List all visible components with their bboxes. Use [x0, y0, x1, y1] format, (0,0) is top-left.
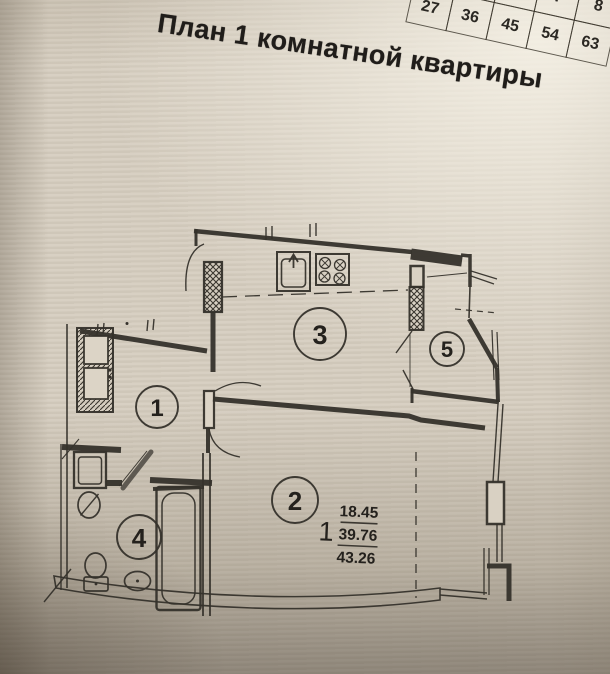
- wall-bottom-curved: [54, 576, 440, 609]
- living-area: 18.45: [339, 503, 379, 522]
- pier-balcony: [411, 266, 424, 287]
- pier-balcony-hatched: [410, 287, 424, 330]
- wardrobe-door-upper: [84, 336, 108, 364]
- room-number-1: 1: [150, 395, 163, 422]
- window-bottom: [440, 589, 487, 599]
- balcony-door-leaf2: [403, 370, 413, 389]
- kitchen-door-arc: [215, 382, 261, 391]
- floor-plan-drawing: 1 2 3 4 5 1 18.45 39.76 43.26: [0, 0, 610, 674]
- wall-balcony-right: [497, 368, 498, 402]
- wardrobe-handle: [108, 375, 111, 378]
- overall-area: 43.26: [336, 549, 376, 568]
- wall-corner-pier: [487, 566, 509, 601]
- bath-door-leaf: [123, 452, 151, 488]
- wardrobe-door-lower: [84, 368, 108, 399]
- room-number-2: 2: [288, 486, 302, 516]
- area-block: 1 18.45 39.76 43.26: [317, 502, 379, 568]
- kitchen-sink-icon: [277, 252, 310, 291]
- room-number-5: 5: [441, 337, 453, 362]
- wall-balcony-hook: [461, 254, 470, 287]
- wall-balcony-top: [411, 254, 462, 261]
- wall-balcony-bottom: [411, 391, 499, 402]
- fraction-bar: [341, 522, 378, 524]
- window-jamb: [484, 548, 489, 595]
- pier-entrance-hatched: [204, 262, 222, 312]
- balcony-glazing-top: [471, 271, 497, 284]
- wall-bath-living: [203, 453, 210, 616]
- wall-living-top: [213, 399, 485, 428]
- bath-door-line: [119, 451, 147, 486]
- pier-facade: [487, 482, 504, 524]
- washing-machine-icon: [74, 452, 106, 488]
- balcony-frame: [469, 287, 470, 318]
- window-right-upper: [493, 404, 503, 482]
- stove-icon: [316, 254, 349, 285]
- balcony-dashed: [455, 309, 498, 313]
- wall-kitchen-top: [194, 231, 412, 252]
- rooms-count: 1: [318, 516, 334, 547]
- window-right-lower: [497, 524, 502, 562]
- washbasin-icon: [78, 492, 100, 518]
- balcony-inner-edge: [427, 273, 467, 277]
- doors: [119, 244, 413, 488]
- wardrobe-handle: [108, 368, 111, 371]
- floor-plan-photo: План 1 комнатной квартиры 7 8 27 36 45 5…: [0, 0, 610, 674]
- entrance-door-arc: [186, 244, 204, 291]
- toilet-icon: [84, 553, 108, 591]
- tick-dot: [126, 322, 129, 325]
- fraction-bar: [338, 545, 378, 547]
- total-area: 39.76: [338, 526, 378, 545]
- kitchen-counter-dashed: [222, 290, 408, 297]
- living-door-arc: [209, 429, 240, 457]
- room-number-3: 3: [312, 320, 327, 350]
- room-number-4: 4: [132, 523, 147, 553]
- door-leaf-hall: [204, 391, 214, 428]
